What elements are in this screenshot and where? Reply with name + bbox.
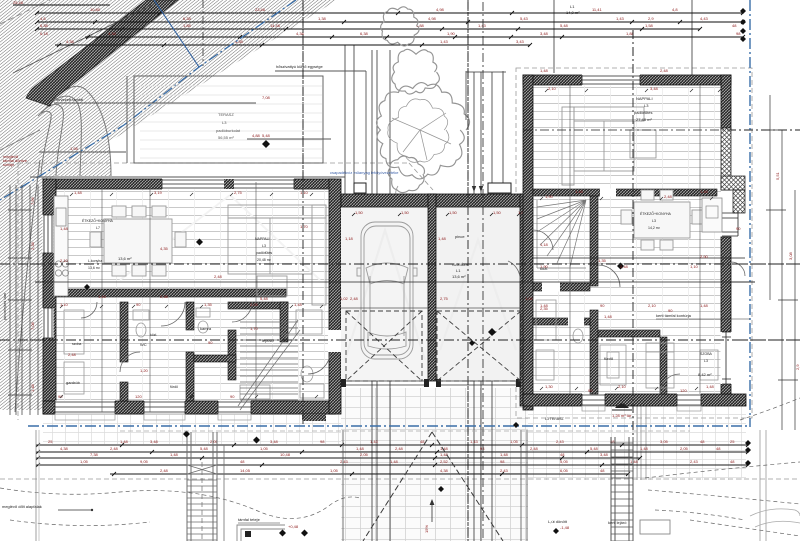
svg-text:1,90: 1,90 xyxy=(545,194,554,199)
svg-text:1,48: 1,48 xyxy=(540,68,549,73)
svg-text:25: 25 xyxy=(730,439,735,444)
svg-text:L3 TERASZ: L3 TERASZ xyxy=(545,417,564,421)
svg-text:2,43: 2,43 xyxy=(500,468,509,473)
svg-text:pincelejáró tám: pincelejáró tám xyxy=(2,292,7,320)
svg-text:4,38: 4,38 xyxy=(60,446,69,451)
svg-text:1,38: 1,38 xyxy=(318,16,327,21)
svg-text:3,43: 3,43 xyxy=(516,39,525,44)
svg-text:90: 90 xyxy=(668,308,673,313)
svg-text:1,18: 1,18 xyxy=(540,242,549,247)
svg-text:13,6 m²: 13,6 m² xyxy=(118,256,132,261)
svg-text:meglévő dőlt alapfalak: meglévő dőlt alapfalak xyxy=(2,504,42,509)
svg-text:5,48: 5,48 xyxy=(260,296,269,301)
svg-text:1,05: 1,05 xyxy=(80,459,89,464)
svg-text:3,19: 3,19 xyxy=(154,190,163,195)
svg-text:1,20: 1,20 xyxy=(140,368,149,373)
svg-text:3,05: 3,05 xyxy=(660,439,669,444)
svg-text:1,43: 1,43 xyxy=(370,439,379,444)
svg-text:90: 90 xyxy=(58,394,63,399)
svg-text:1,58: 1,58 xyxy=(645,23,654,28)
svg-text:1,48: 1,48 xyxy=(575,189,584,194)
svg-text:3,48: 3,48 xyxy=(650,86,659,91)
svg-text:25,48: 25,48 xyxy=(13,0,24,5)
svg-text:csapadékvíz műanyag lefolyóvez: csapadékvíz műanyag lefolyóvezetéke xyxy=(330,170,399,175)
svg-text:kerti lejáró: kerti lejáró xyxy=(608,520,627,525)
svg-text:10,48: 10,48 xyxy=(280,452,291,457)
svg-text:WC: WC xyxy=(140,342,147,347)
svg-text:1,43: 1,43 xyxy=(470,439,479,444)
svg-text:4,98: 4,98 xyxy=(428,16,437,21)
svg-text:2,48: 2,48 xyxy=(530,446,539,451)
svg-text:2,10: 2,10 xyxy=(60,258,69,263)
svg-text:90: 90 xyxy=(136,302,141,307)
svg-text:-1,48: -1,48 xyxy=(560,525,570,530)
svg-text:5,05: 5,05 xyxy=(560,459,569,464)
svg-text:fürdő: fürdő xyxy=(170,385,178,389)
svg-text:L1: L1 xyxy=(570,4,575,9)
svg-text:14,2 m²: 14,2 m² xyxy=(648,226,661,230)
svg-text:1,48: 1,48 xyxy=(500,452,509,457)
svg-text:1,48: 1,48 xyxy=(604,314,613,319)
svg-text:5,51: 5,51 xyxy=(775,171,780,180)
svg-text:2,43: 2,43 xyxy=(690,459,699,464)
svg-text:4,38: 4,38 xyxy=(440,468,449,473)
svg-text:25: 25 xyxy=(48,439,53,444)
svg-text:padlófűtés: padlófűtés xyxy=(256,251,272,255)
svg-text:1,50: 1,50 xyxy=(493,210,502,215)
svg-text:L3: L3 xyxy=(262,244,266,248)
svg-text:4,35: 4,35 xyxy=(160,246,169,251)
svg-text:1,30: 1,30 xyxy=(545,384,554,389)
svg-text:TERASZ: TERASZ xyxy=(218,112,234,117)
svg-text:2,10: 2,10 xyxy=(648,303,657,308)
svg-text:L,út dönött: L,út dönött xyxy=(548,519,568,524)
svg-text:1,48: 1,48 xyxy=(60,226,69,231)
svg-text:pince: pince xyxy=(455,234,465,239)
svg-text:13,6 m²: 13,6 m² xyxy=(88,266,101,270)
svg-text:120: 120 xyxy=(680,388,687,393)
svg-text:2,48: 2,48 xyxy=(68,352,77,357)
svg-text:1,48: 1,48 xyxy=(170,452,179,457)
svg-text:48: 48 xyxy=(730,459,735,464)
svg-text:2,38: 2,38 xyxy=(30,241,35,250)
svg-text:padlóburkolat: padlóburkolat xyxy=(216,128,241,133)
svg-text:90: 90 xyxy=(736,226,741,231)
svg-text:L3: L3 xyxy=(644,103,649,108)
svg-text:20,48 m²: 20,48 m² xyxy=(257,258,272,262)
svg-text:5,48: 5,48 xyxy=(590,446,599,451)
svg-text:2,75: 2,75 xyxy=(440,296,449,301)
svg-text:6,05: 6,05 xyxy=(560,468,569,473)
svg-text:4,98: 4,98 xyxy=(436,7,445,12)
svg-text:2,48: 2,48 xyxy=(214,274,223,279)
svg-text:L3: L3 xyxy=(652,219,656,223)
svg-text:1,43: 1,43 xyxy=(616,16,625,21)
svg-text:1,05: 1,05 xyxy=(510,439,519,444)
svg-text:14,46: 14,46 xyxy=(270,23,281,28)
svg-text:2,38: 2,38 xyxy=(160,294,169,299)
svg-text:1,02: 1,02 xyxy=(340,296,349,301)
svg-text:48: 48 xyxy=(600,468,605,473)
svg-text:1,05: 1,05 xyxy=(330,468,339,473)
svg-text:1,48: 1,48 xyxy=(390,459,399,464)
svg-text:6,38: 6,38 xyxy=(183,16,192,21)
svg-text:1,35: 1,35 xyxy=(598,258,607,263)
svg-text:5,48: 5,48 xyxy=(200,446,209,451)
svg-text:2,9: 2,9 xyxy=(648,16,654,21)
svg-text:15%: 15% xyxy=(424,525,429,533)
svg-text:1,48: 1,48 xyxy=(630,459,639,464)
svg-text:2,48: 2,48 xyxy=(660,68,669,73)
svg-text:1,43: 1,43 xyxy=(478,23,487,28)
svg-text:2,48: 2,48 xyxy=(110,446,119,451)
svg-text:1,48: 1,48 xyxy=(640,446,649,451)
svg-text:90: 90 xyxy=(208,340,213,345)
svg-text:7,96: 7,96 xyxy=(30,196,35,205)
svg-text:NAPPALI: NAPPALI xyxy=(255,237,270,241)
svg-text:2,43: 2,43 xyxy=(340,459,349,464)
svg-text:2,48: 2,48 xyxy=(664,194,673,199)
svg-text:1,43: 1,43 xyxy=(440,39,449,44)
svg-text:1,48: 1,48 xyxy=(438,236,447,241)
svg-text:SZOBA: SZOBA xyxy=(700,352,713,356)
svg-text:4,8: 4,8 xyxy=(40,16,46,21)
svg-text:4,8: 4,8 xyxy=(672,7,678,12)
svg-text:56,55 m²: 56,55 m² xyxy=(218,135,234,140)
svg-text:6,38: 6,38 xyxy=(360,31,369,36)
svg-text:1,70: 1,70 xyxy=(250,326,259,331)
svg-text:27,48 m²: 27,48 m² xyxy=(636,117,652,122)
svg-text:hőszivattyú külső egysége: hőszivattyú külső egysége xyxy=(276,64,323,69)
svg-text:98: 98 xyxy=(320,439,325,444)
svg-text:fürdő: fürdő xyxy=(604,356,614,361)
svg-text:1,10: 1,10 xyxy=(690,264,699,269)
svg-text:5,43: 5,43 xyxy=(520,16,529,21)
svg-text:3,48: 3,48 xyxy=(600,452,609,457)
svg-text:1,48: 1,48 xyxy=(700,303,709,308)
svg-text:közl.: közl. xyxy=(540,266,548,271)
svg-text:2,9: 2,9 xyxy=(795,364,800,370)
svg-text:90: 90 xyxy=(600,303,605,308)
svg-text:kamra: kamra xyxy=(200,326,212,331)
svg-text:1,48: 1,48 xyxy=(294,302,303,307)
svg-text:szintje: szintje xyxy=(3,162,15,167)
svg-text:1,10: 1,10 xyxy=(60,302,69,307)
svg-text:2,48: 2,48 xyxy=(160,468,169,473)
svg-text:23,46: 23,46 xyxy=(255,7,266,12)
svg-text:1,50: 1,50 xyxy=(401,210,410,215)
svg-text:4,88: 4,88 xyxy=(252,133,261,138)
svg-text:L3: L3 xyxy=(704,359,708,363)
svg-text:2,43: 2,43 xyxy=(556,439,565,444)
svg-text:3,48: 3,48 xyxy=(270,439,279,444)
svg-text:1,50: 1,50 xyxy=(449,210,458,215)
svg-text:90: 90 xyxy=(588,388,593,393)
svg-text:1,90: 1,90 xyxy=(447,31,456,36)
svg-text:1,28 m³ tár: 1,28 m³ tár xyxy=(612,413,632,418)
svg-text:3,48: 3,48 xyxy=(150,439,159,444)
svg-text:9,05: 9,05 xyxy=(140,459,149,464)
svg-text:2,10: 2,10 xyxy=(618,384,627,389)
svg-text:1,10: 1,10 xyxy=(300,190,309,195)
svg-text:5,48: 5,48 xyxy=(262,133,271,138)
svg-text:közl.: közl. xyxy=(150,333,157,337)
svg-text:1,48: 1,48 xyxy=(706,384,715,389)
svg-text:14,05: 14,05 xyxy=(240,468,251,473)
svg-text:2,90: 2,90 xyxy=(700,254,709,259)
svg-text:2,10: 2,10 xyxy=(548,86,557,91)
svg-text:48: 48 xyxy=(240,459,245,464)
svg-text:3,08: 3,08 xyxy=(788,251,793,260)
svg-text:2,05: 2,05 xyxy=(360,452,369,457)
svg-text:48: 48 xyxy=(560,452,565,457)
svg-text:támfal teteje: támfal teteje xyxy=(238,517,261,522)
svg-text:4,38: 4,38 xyxy=(108,31,117,36)
svg-text:1,35: 1,35 xyxy=(204,302,213,307)
svg-text:1,18: 1,18 xyxy=(345,236,354,241)
svg-text:2,75: 2,75 xyxy=(234,190,243,195)
svg-text:1,48: 1,48 xyxy=(120,439,129,444)
svg-text:2,05: 2,05 xyxy=(680,446,689,451)
svg-text:NAPPALI: NAPPALI xyxy=(636,96,653,101)
svg-text:L1: L1 xyxy=(456,268,461,273)
svg-text:kerti támfal kontúrja: kerti támfal kontúrja xyxy=(656,313,692,318)
svg-text:ÉTKEZŐ+KONYHA: ÉTKEZŐ+KONYHA xyxy=(640,211,671,216)
svg-text:+0,48: +0,48 xyxy=(288,524,299,529)
svg-text:2,48: 2,48 xyxy=(350,296,359,301)
svg-text:98: 98 xyxy=(500,459,505,464)
svg-text:1,88: 1,88 xyxy=(183,23,192,28)
svg-text:L7: L7 xyxy=(96,226,100,230)
svg-text:13,6 m²: 13,6 m² xyxy=(452,274,466,279)
svg-text:10,80: 10,80 xyxy=(90,7,101,12)
svg-text:1,48: 1,48 xyxy=(540,303,549,308)
svg-text:1,48: 1,48 xyxy=(74,190,83,195)
svg-text:7,08: 7,08 xyxy=(30,321,35,330)
svg-text:1,05: 1,05 xyxy=(260,446,269,451)
svg-text:4,43: 4,43 xyxy=(700,16,709,21)
svg-text:11,41: 11,41 xyxy=(592,7,602,12)
svg-text:98: 98 xyxy=(736,31,741,36)
svg-text:5,48: 5,48 xyxy=(560,23,569,28)
svg-text:2,48: 2,48 xyxy=(620,264,629,269)
svg-text:2,05: 2,05 xyxy=(250,302,259,307)
svg-text:7,08: 7,08 xyxy=(262,95,271,100)
svg-text:1,48: 1,48 xyxy=(700,189,709,194)
svg-text:90: 90 xyxy=(230,394,235,399)
svg-text:1,48: 1,48 xyxy=(30,383,35,392)
svg-text:2,52: 2,52 xyxy=(440,459,449,464)
svg-text:48: 48 xyxy=(716,446,721,451)
svg-text:1,50: 1,50 xyxy=(355,210,364,215)
svg-text:padlófűtés: padlófűtés xyxy=(634,110,652,115)
svg-text:1,02: 1,02 xyxy=(525,296,534,301)
svg-text:4,38: 4,38 xyxy=(66,39,75,44)
svg-text:Tervezett támfal: Tervezett támfal xyxy=(55,97,83,102)
svg-text:1,98: 1,98 xyxy=(70,146,79,151)
svg-text:1,48: 1,48 xyxy=(356,446,365,451)
svg-text:8,42 m²: 8,42 m² xyxy=(698,372,712,377)
svg-text:L.konyha: L.konyha xyxy=(88,259,102,263)
svg-text:gardrób: gardrób xyxy=(66,380,81,385)
svg-text:szoba: szoba xyxy=(72,342,81,346)
svg-text:6,18: 6,18 xyxy=(40,31,49,36)
svg-text:ÉTKEZŐ+KONYHA: ÉTKEZŐ+KONYHA xyxy=(82,218,113,223)
svg-text:6,38: 6,38 xyxy=(40,23,49,28)
svg-text:3,48: 3,48 xyxy=(540,31,549,36)
svg-text:7,38: 7,38 xyxy=(90,452,99,457)
svg-text:L3: L3 xyxy=(222,120,227,125)
svg-text:48: 48 xyxy=(700,439,705,444)
svg-text:120: 120 xyxy=(135,394,142,399)
svg-text:1,70: 1,70 xyxy=(300,224,309,229)
svg-text:2,48: 2,48 xyxy=(395,446,404,451)
svg-text:48: 48 xyxy=(732,23,737,28)
svg-text:lépcső: lépcső xyxy=(262,338,274,343)
svg-text:1,43: 1,43 xyxy=(98,294,107,299)
